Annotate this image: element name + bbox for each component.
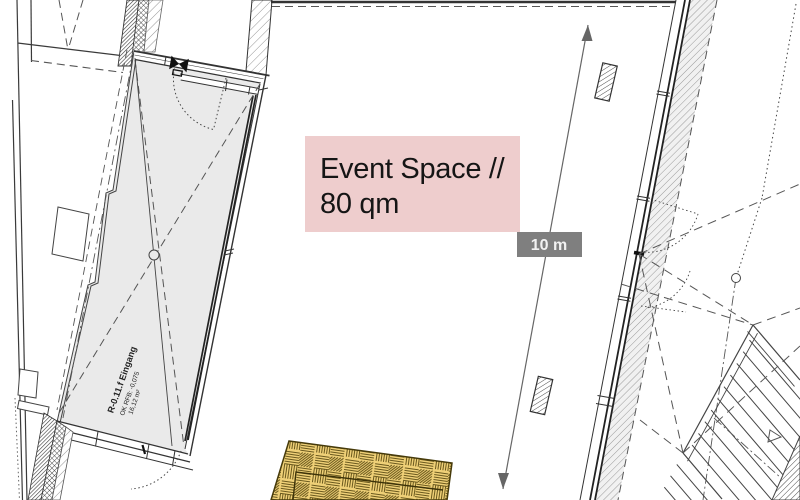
svg-text:10 m: 10 m (531, 237, 567, 254)
svg-text:Event Space //: Event Space // (320, 153, 506, 185)
svg-text:80 qm: 80 qm (320, 188, 399, 220)
